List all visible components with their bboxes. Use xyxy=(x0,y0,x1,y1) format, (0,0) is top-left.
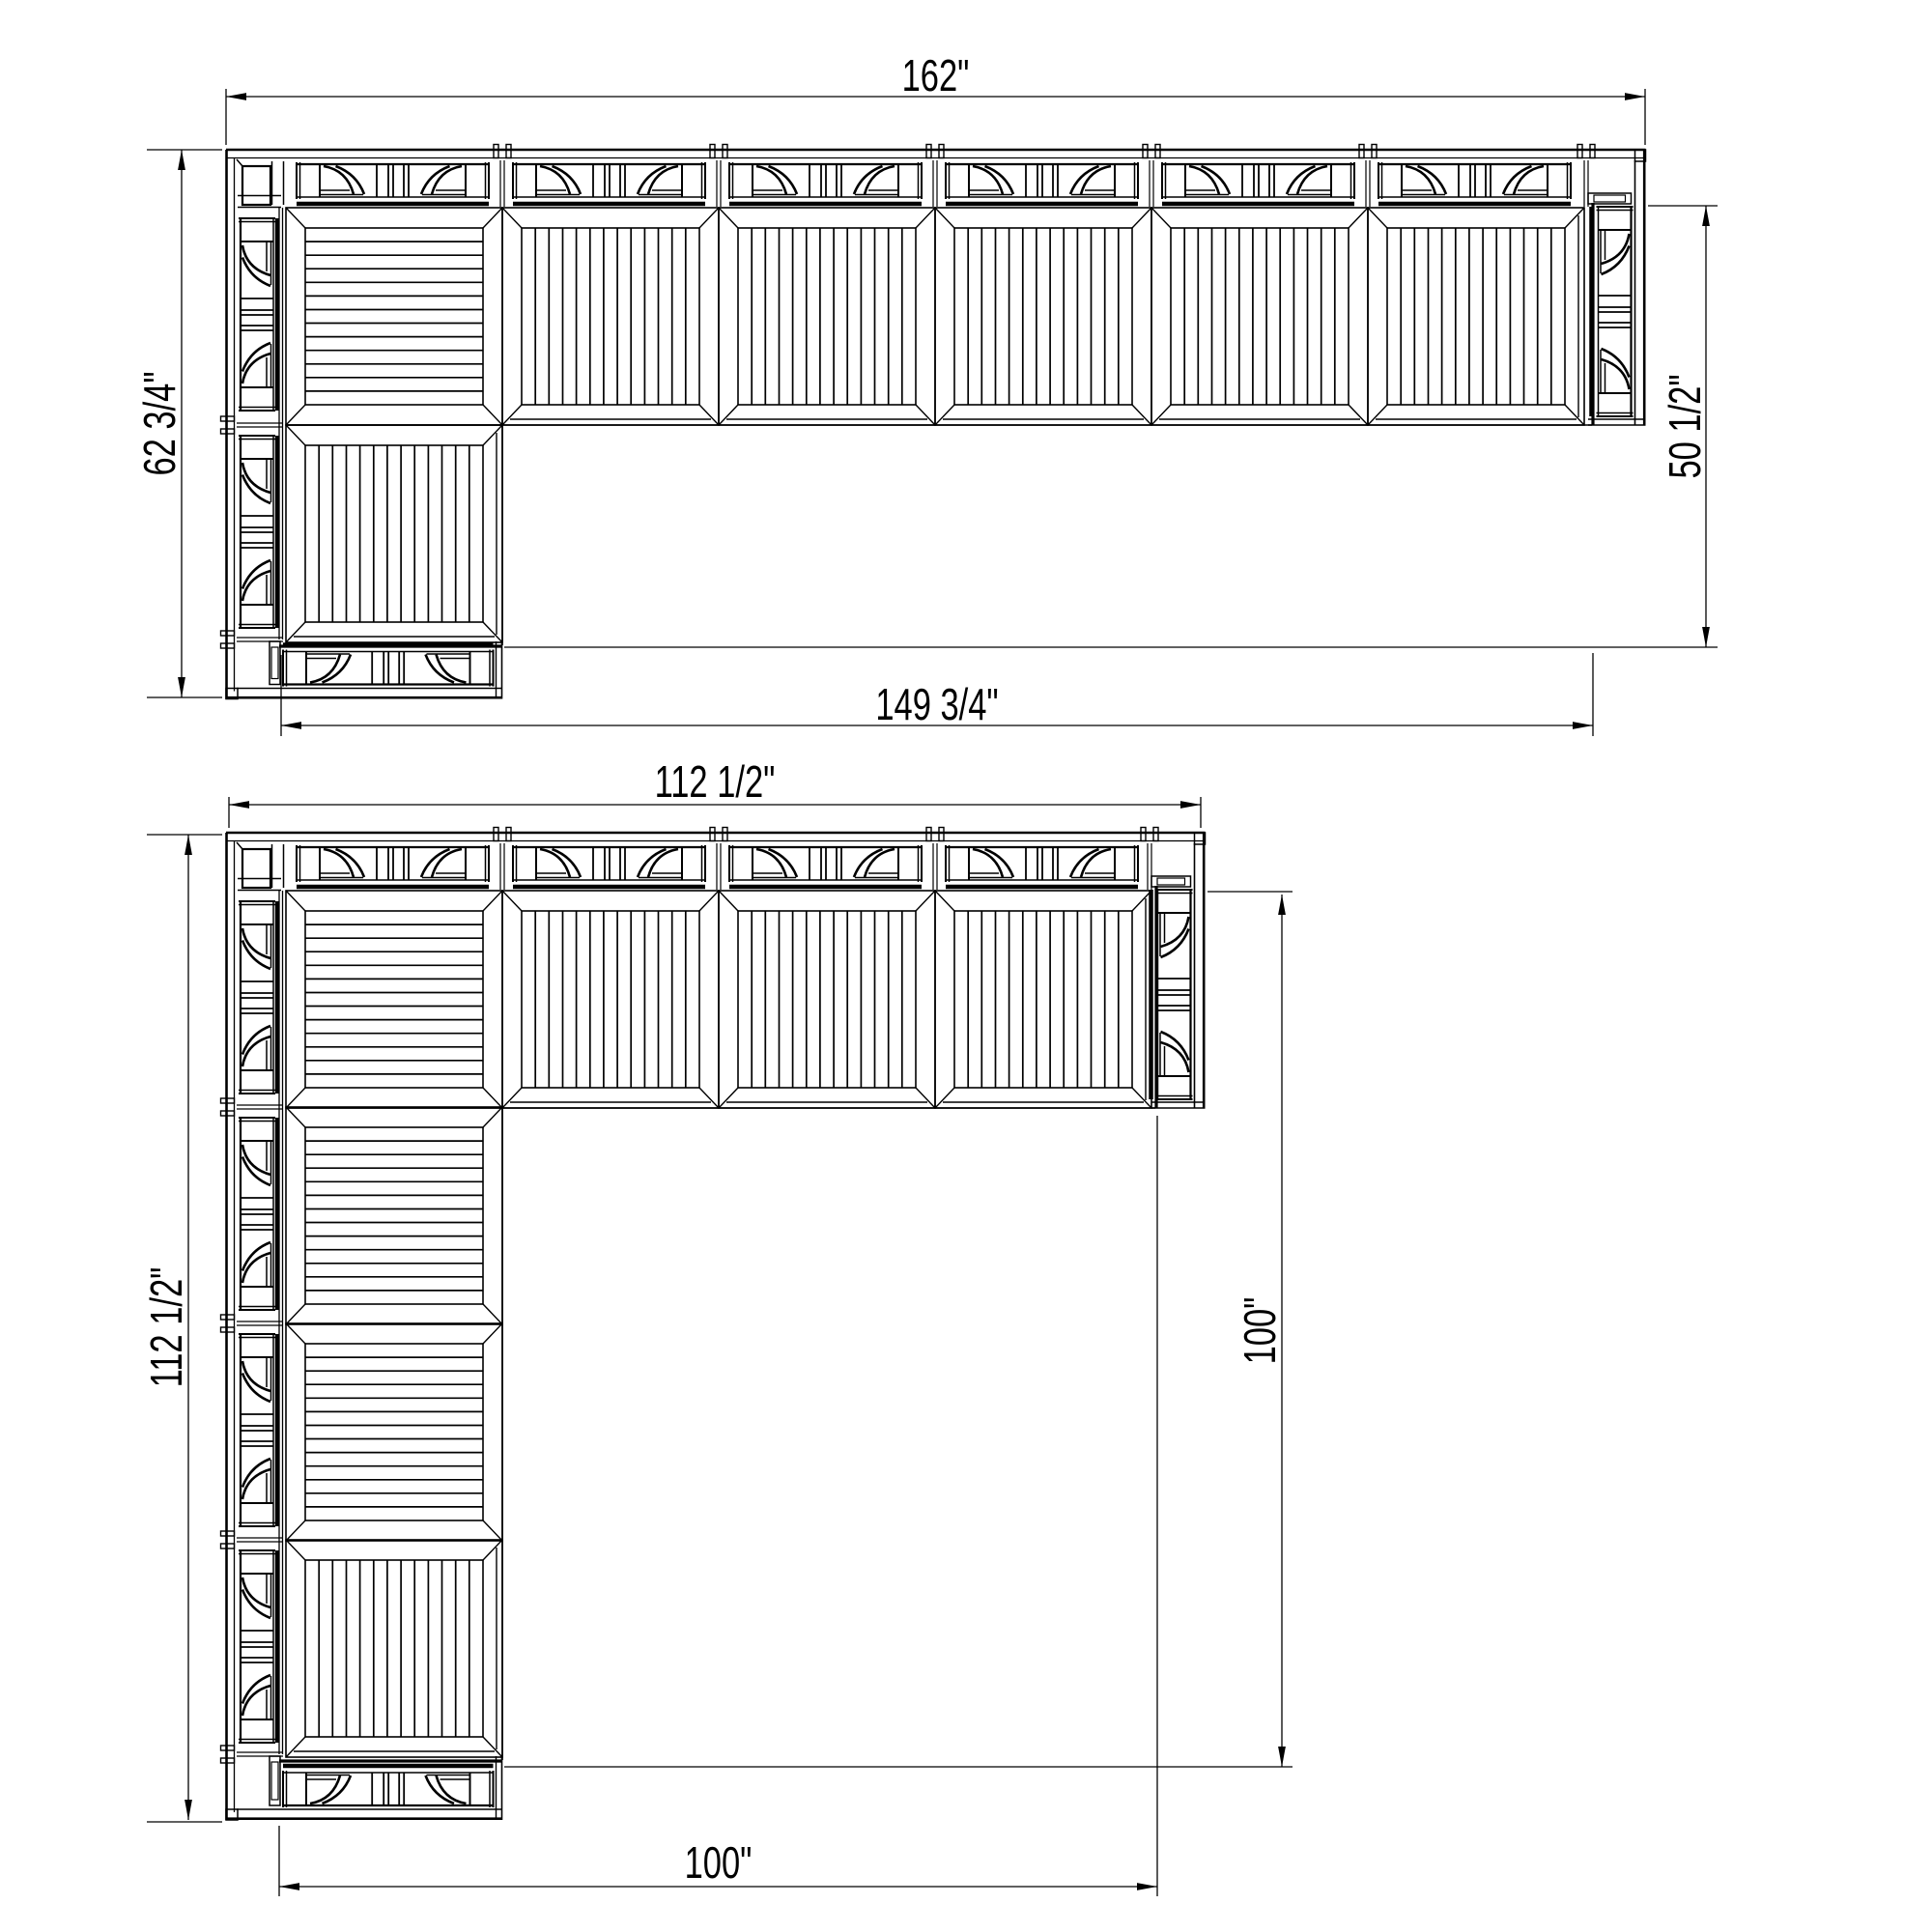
svg-text:149 3/4": 149 3/4" xyxy=(875,679,998,729)
svg-text:50 1/2": 50 1/2" xyxy=(1660,374,1710,478)
svg-text:100": 100" xyxy=(1235,1297,1285,1365)
svg-text:112 1/2": 112 1/2" xyxy=(141,1267,191,1388)
svg-text:100": 100" xyxy=(685,1837,753,1888)
svg-text:62 3/4": 62 3/4" xyxy=(134,371,185,475)
svg-text:112 1/2": 112 1/2" xyxy=(655,756,776,807)
svg-text:162": 162" xyxy=(902,50,970,100)
